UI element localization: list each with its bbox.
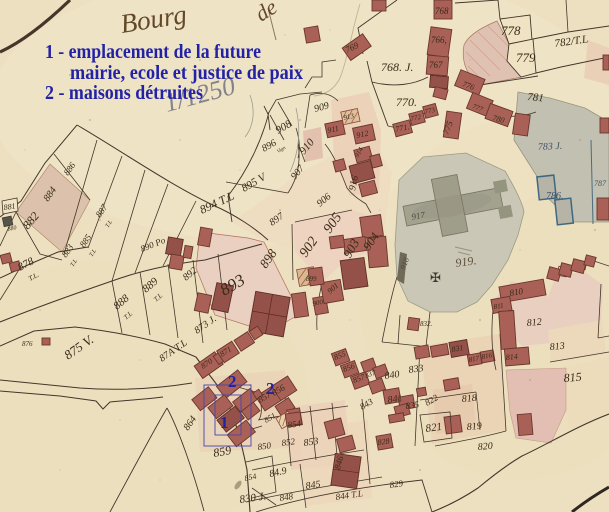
svg-text:850: 850 [257, 440, 272, 452]
svg-text:1: 1 [220, 413, 229, 432]
svg-text:828: 828 [377, 436, 390, 447]
svg-text:840: 840 [384, 369, 400, 382]
svg-text:852: 852 [281, 436, 296, 448]
svg-text:853: 853 [303, 436, 319, 449]
svg-text:832.: 832. [420, 320, 433, 328]
svg-text:815: 815 [563, 369, 582, 385]
svg-text:768. J.: 768. J. [381, 60, 413, 74]
svg-text:781: 781 [527, 91, 544, 104]
svg-text:2 - maisons détruites: 2 - maisons détruites [45, 83, 203, 104]
svg-text:829: 829 [389, 478, 404, 490]
svg-text:767: 767 [429, 60, 443, 70]
svg-text:876: 876 [22, 340, 33, 348]
svg-text:854: 854 [287, 418, 302, 430]
svg-text:821: 821 [425, 421, 443, 435]
svg-text:778: 778 [501, 23, 521, 38]
svg-text:783 J.: 783 J. [538, 141, 563, 153]
svg-text:768: 768 [435, 6, 449, 16]
svg-text:812: 812 [526, 317, 542, 329]
svg-text:779: 779 [516, 50, 536, 65]
svg-text:820: 820 [477, 441, 493, 453]
svg-text:818: 818 [461, 393, 477, 405]
svg-text:835: 835 [405, 399, 420, 411]
svg-text:919.: 919. [454, 253, 477, 270]
svg-text:770.: 770. [396, 95, 417, 109]
svg-text:787: 787 [594, 179, 607, 188]
svg-text:899: 899 [306, 275, 317, 283]
svg-text:766,: 766, [431, 35, 447, 45]
svg-text:786.: 786. [546, 191, 564, 202]
svg-text:2: 2 [228, 372, 237, 391]
svg-text:881: 881 [3, 201, 16, 212]
svg-text:814: 814 [505, 352, 518, 362]
svg-text:813: 813 [549, 341, 565, 353]
svg-text:mairie, ecole et justice de pa: mairie, ecole et justice de paix [70, 63, 303, 84]
svg-text:✠: ✠ [430, 270, 441, 285]
svg-text:819: 819 [466, 421, 482, 433]
svg-text:1 - emplacement de la future: 1 - emplacement de la future [45, 42, 261, 63]
svg-text:845: 845 [305, 479, 321, 492]
svg-text:811: 811 [493, 302, 504, 311]
svg-text:2: 2 [266, 379, 275, 398]
svg-text:841: 841 [387, 393, 403, 406]
svg-text:848: 848 [279, 491, 294, 503]
svg-text:833: 833 [408, 363, 424, 376]
